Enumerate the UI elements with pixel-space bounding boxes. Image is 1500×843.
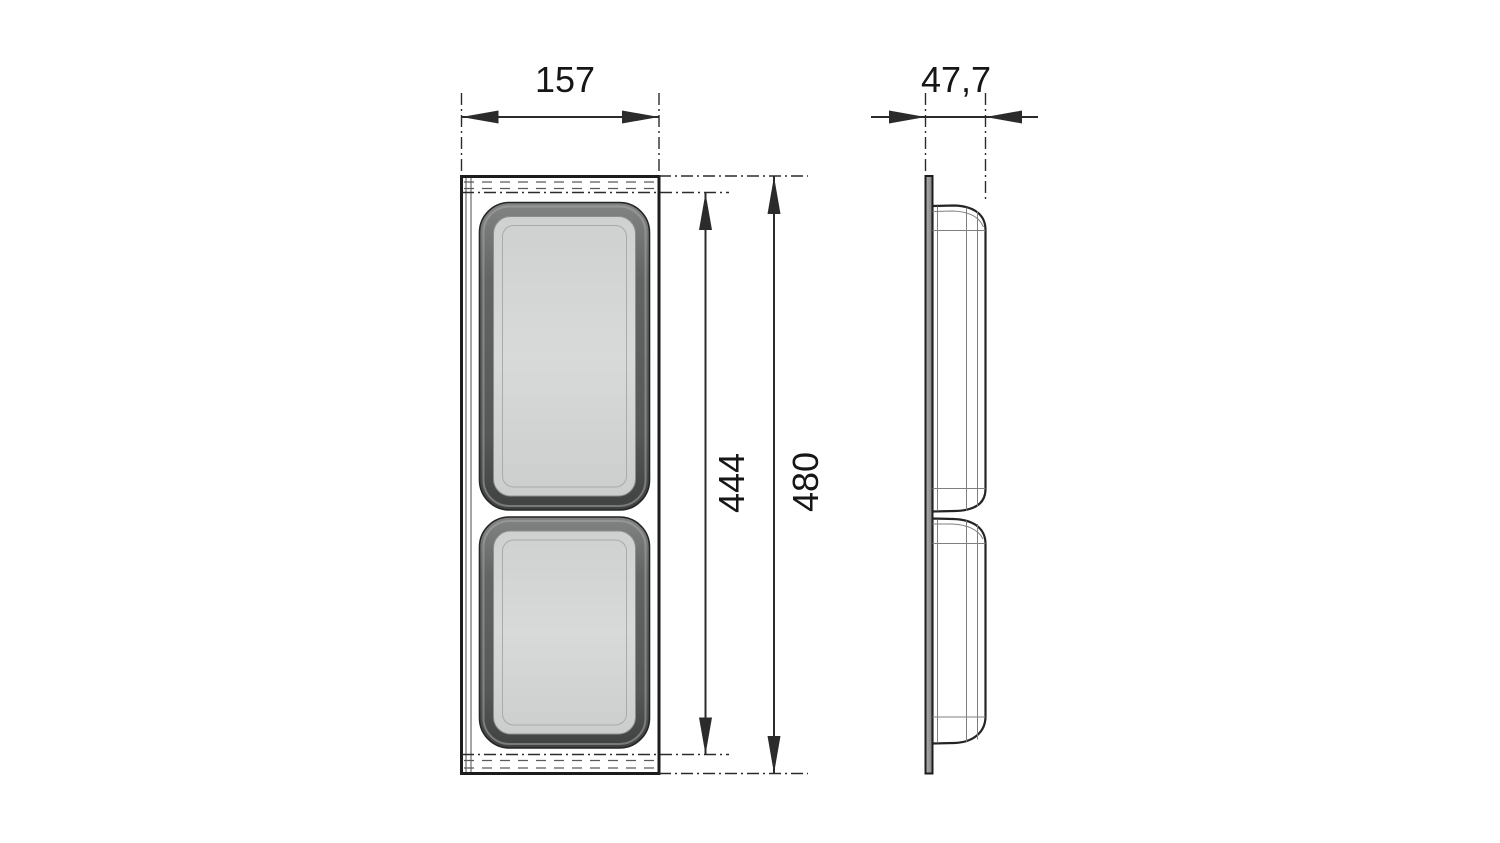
inner-height-arrow-bottom (699, 718, 712, 755)
width-arrow-left (462, 111, 499, 124)
front-left-flange-lines (466, 178, 471, 772)
width-dimension-label: 157 (535, 59, 595, 100)
depth-arrow-left (889, 111, 926, 124)
front-bottom-flange-hatching (464, 761, 656, 769)
side-upper-bulge-contours (933, 207, 986, 512)
front-top-flange-hatching (464, 182, 656, 189)
side-upper-bulge (933, 206, 986, 512)
side-lower-bulge (933, 519, 986, 744)
front-view (462, 177, 660, 774)
overall-height-dimension-label: 480 (785, 452, 826, 512)
inner-height-arrow-top (699, 193, 712, 230)
compartment-upper (480, 203, 650, 511)
drawing-canvas: 157 47,7 444 480 (0, 0, 1500, 843)
width-arrow-right (622, 111, 659, 124)
depth-dimension-label: 47,7 (921, 59, 991, 100)
side-lower-bulge-contours (933, 520, 986, 744)
overall-height-arrow-bottom (768, 736, 781, 774)
drawing-page: 157 47,7 444 480 (0, 0, 1500, 843)
compartment-upper-floor (494, 217, 636, 497)
dimension-depth: 47,7 (871, 59, 1038, 203)
dimension-width: 157 (462, 59, 660, 174)
compartment-lower (480, 517, 650, 748)
compartment-lower-floor (494, 531, 636, 734)
side-view (926, 176, 986, 774)
overall-height-arrow-top (768, 177, 781, 215)
depth-arrow-right (986, 111, 1023, 124)
inner-height-dimension-label: 444 (711, 453, 752, 513)
